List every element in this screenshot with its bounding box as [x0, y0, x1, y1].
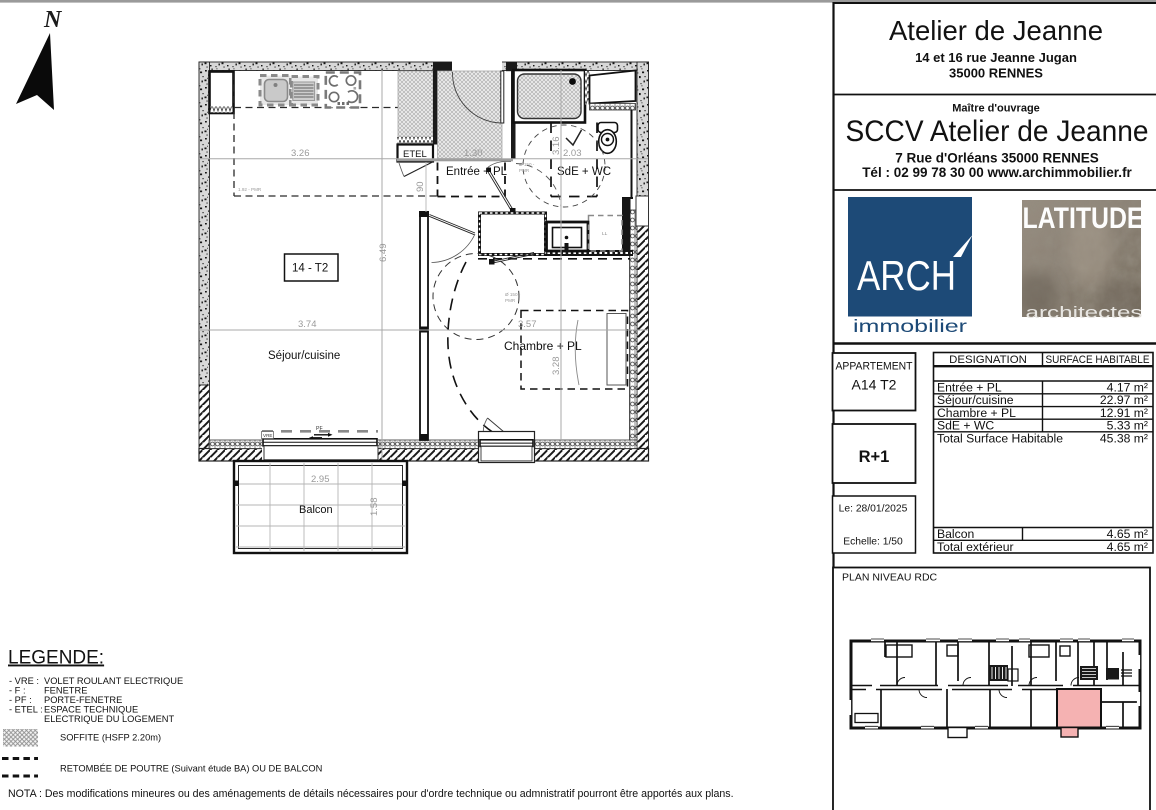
svg-text:ARCH: ARCH	[857, 252, 956, 299]
svg-text:LL: LL	[602, 231, 608, 237]
svg-text:LATITUDE: LATITUDE	[1023, 202, 1144, 235]
svg-text:Maître d'ouvrage: Maître d'ouvrage	[952, 103, 1040, 115]
svg-text:PMR: PMR	[505, 298, 516, 303]
svg-text:Atelier de Jeanne: Atelier de Jeanne	[889, 15, 1103, 46]
svg-text:1.92 - PMR: 1.92 - PMR	[238, 187, 262, 192]
svg-text:Echelle: 1/50: Echelle: 1/50	[843, 537, 903, 548]
svg-text:2.95: 2.95	[311, 474, 330, 485]
svg-text:PORTE-FENETRE: PORTE-FENETRE	[44, 695, 122, 705]
svg-text:ESPACE TECHNIQUE: ESPACE TECHNIQUE	[44, 705, 138, 715]
svg-text:- ETEL :: - ETEL :	[9, 705, 43, 715]
svg-text:90: 90	[415, 181, 426, 192]
svg-text:6.49: 6.49	[378, 244, 389, 263]
svg-text:- PF :: - PF :	[9, 695, 32, 705]
svg-text:35000 RENNES: 35000 RENNES	[949, 66, 1043, 81]
svg-text:Tél : 02 99 78 30 00 www.archi: Tél : 02 99 78 30 00 www.archimmobilier.…	[862, 165, 1132, 180]
svg-text:2.03: 2.03	[563, 148, 582, 159]
svg-text:- F :: - F :	[9, 686, 26, 696]
svg-text:SOFFITE (HSFP 2.20m): SOFFITE (HSFP 2.20m)	[60, 733, 161, 743]
svg-text:Séjour/cuisine: Séjour/cuisine	[268, 350, 340, 362]
svg-text:14 - T2: 14 - T2	[292, 263, 328, 275]
svg-text:Chambre + PL: Chambre + PL	[504, 339, 582, 353]
svg-text:3.57: 3.57	[518, 319, 537, 330]
svg-text:5.33 m²: 5.33 m²	[1107, 419, 1148, 433]
svg-text:N: N	[43, 7, 63, 33]
svg-text:RETOMBÉE DE POUTRE (Suivant ét: RETOMBÉE DE POUTRE (Suivant étude BA) OU…	[60, 764, 322, 774]
svg-text:DESIGNATION: DESIGNATION	[949, 354, 1027, 366]
svg-text:SdE + WC: SdE + WC	[557, 166, 611, 178]
svg-text:A14 T2: A14 T2	[852, 377, 897, 393]
svg-text:LEGENDE:: LEGENDE:	[8, 648, 104, 669]
svg-text:3.16: 3.16	[551, 137, 562, 156]
svg-text:Ø 150 -: Ø 150 -	[519, 162, 535, 167]
svg-text:1.30: 1.30	[464, 148, 483, 159]
svg-text:R+1: R+1	[859, 448, 890, 466]
svg-text:PLAN NIVEAU RDC: PLAN NIVEAU RDC	[842, 572, 938, 584]
svg-text:immobilier: immobilier	[853, 316, 967, 336]
svg-text:SURFACE HABITABLE: SURFACE HABITABLE	[1046, 354, 1150, 366]
svg-text:VRE: VRE	[263, 433, 272, 438]
svg-text:Balcon: Balcon	[299, 504, 333, 516]
svg-text:Total Surface Habitable: Total Surface Habitable	[937, 432, 1063, 446]
svg-text:SdE + WC: SdE + WC	[937, 419, 994, 433]
svg-text:4.65 m²: 4.65 m²	[1107, 540, 1148, 554]
svg-text:ELECTRIQUE DU LOGEMENT: ELECTRIQUE DU LOGEMENT	[44, 714, 174, 724]
svg-text:14 et 16 rue Jeanne Jugan: 14 et 16 rue Jeanne Jugan	[915, 50, 1077, 65]
svg-text:3.28: 3.28	[551, 357, 562, 376]
svg-text:VOLET ROULANT ELECTRIQUE: VOLET ROULANT ELECTRIQUE	[44, 676, 183, 686]
svg-text:PMR: PMR	[519, 168, 530, 173]
svg-text:3.74: 3.74	[298, 319, 317, 330]
svg-text:45.38 m²: 45.38 m²	[1100, 432, 1148, 446]
svg-text:FENETRE: FENETRE	[44, 686, 87, 696]
svg-text:3.26: 3.26	[291, 148, 310, 159]
svg-text:architectes: architectes	[1026, 303, 1143, 322]
svg-text:SCCV Atelier de Jeanne: SCCV Atelier de Jeanne	[846, 115, 1149, 148]
svg-text:Entrée + PL: Entrée + PL	[446, 166, 508, 178]
svg-text:PF: PF	[316, 426, 323, 432]
svg-text:Le: 28/01/2025: Le: 28/01/2025	[839, 504, 908, 515]
svg-text:Total extérieur: Total extérieur	[937, 540, 1014, 554]
svg-text:- VRE :: - VRE :	[9, 676, 39, 686]
svg-text:7 Rue d'Orléans 35000 RENNES: 7 Rue d'Orléans 35000 RENNES	[895, 151, 1099, 166]
svg-text:APPARTEMENT: APPARTEMENT	[836, 361, 913, 373]
svg-text:Ø 150 -: Ø 150 -	[505, 292, 521, 297]
svg-text:NOTA : Des modifications mineu: NOTA : Des modifications mineures ou des…	[8, 788, 734, 800]
svg-text:1.58: 1.58	[369, 498, 380, 517]
